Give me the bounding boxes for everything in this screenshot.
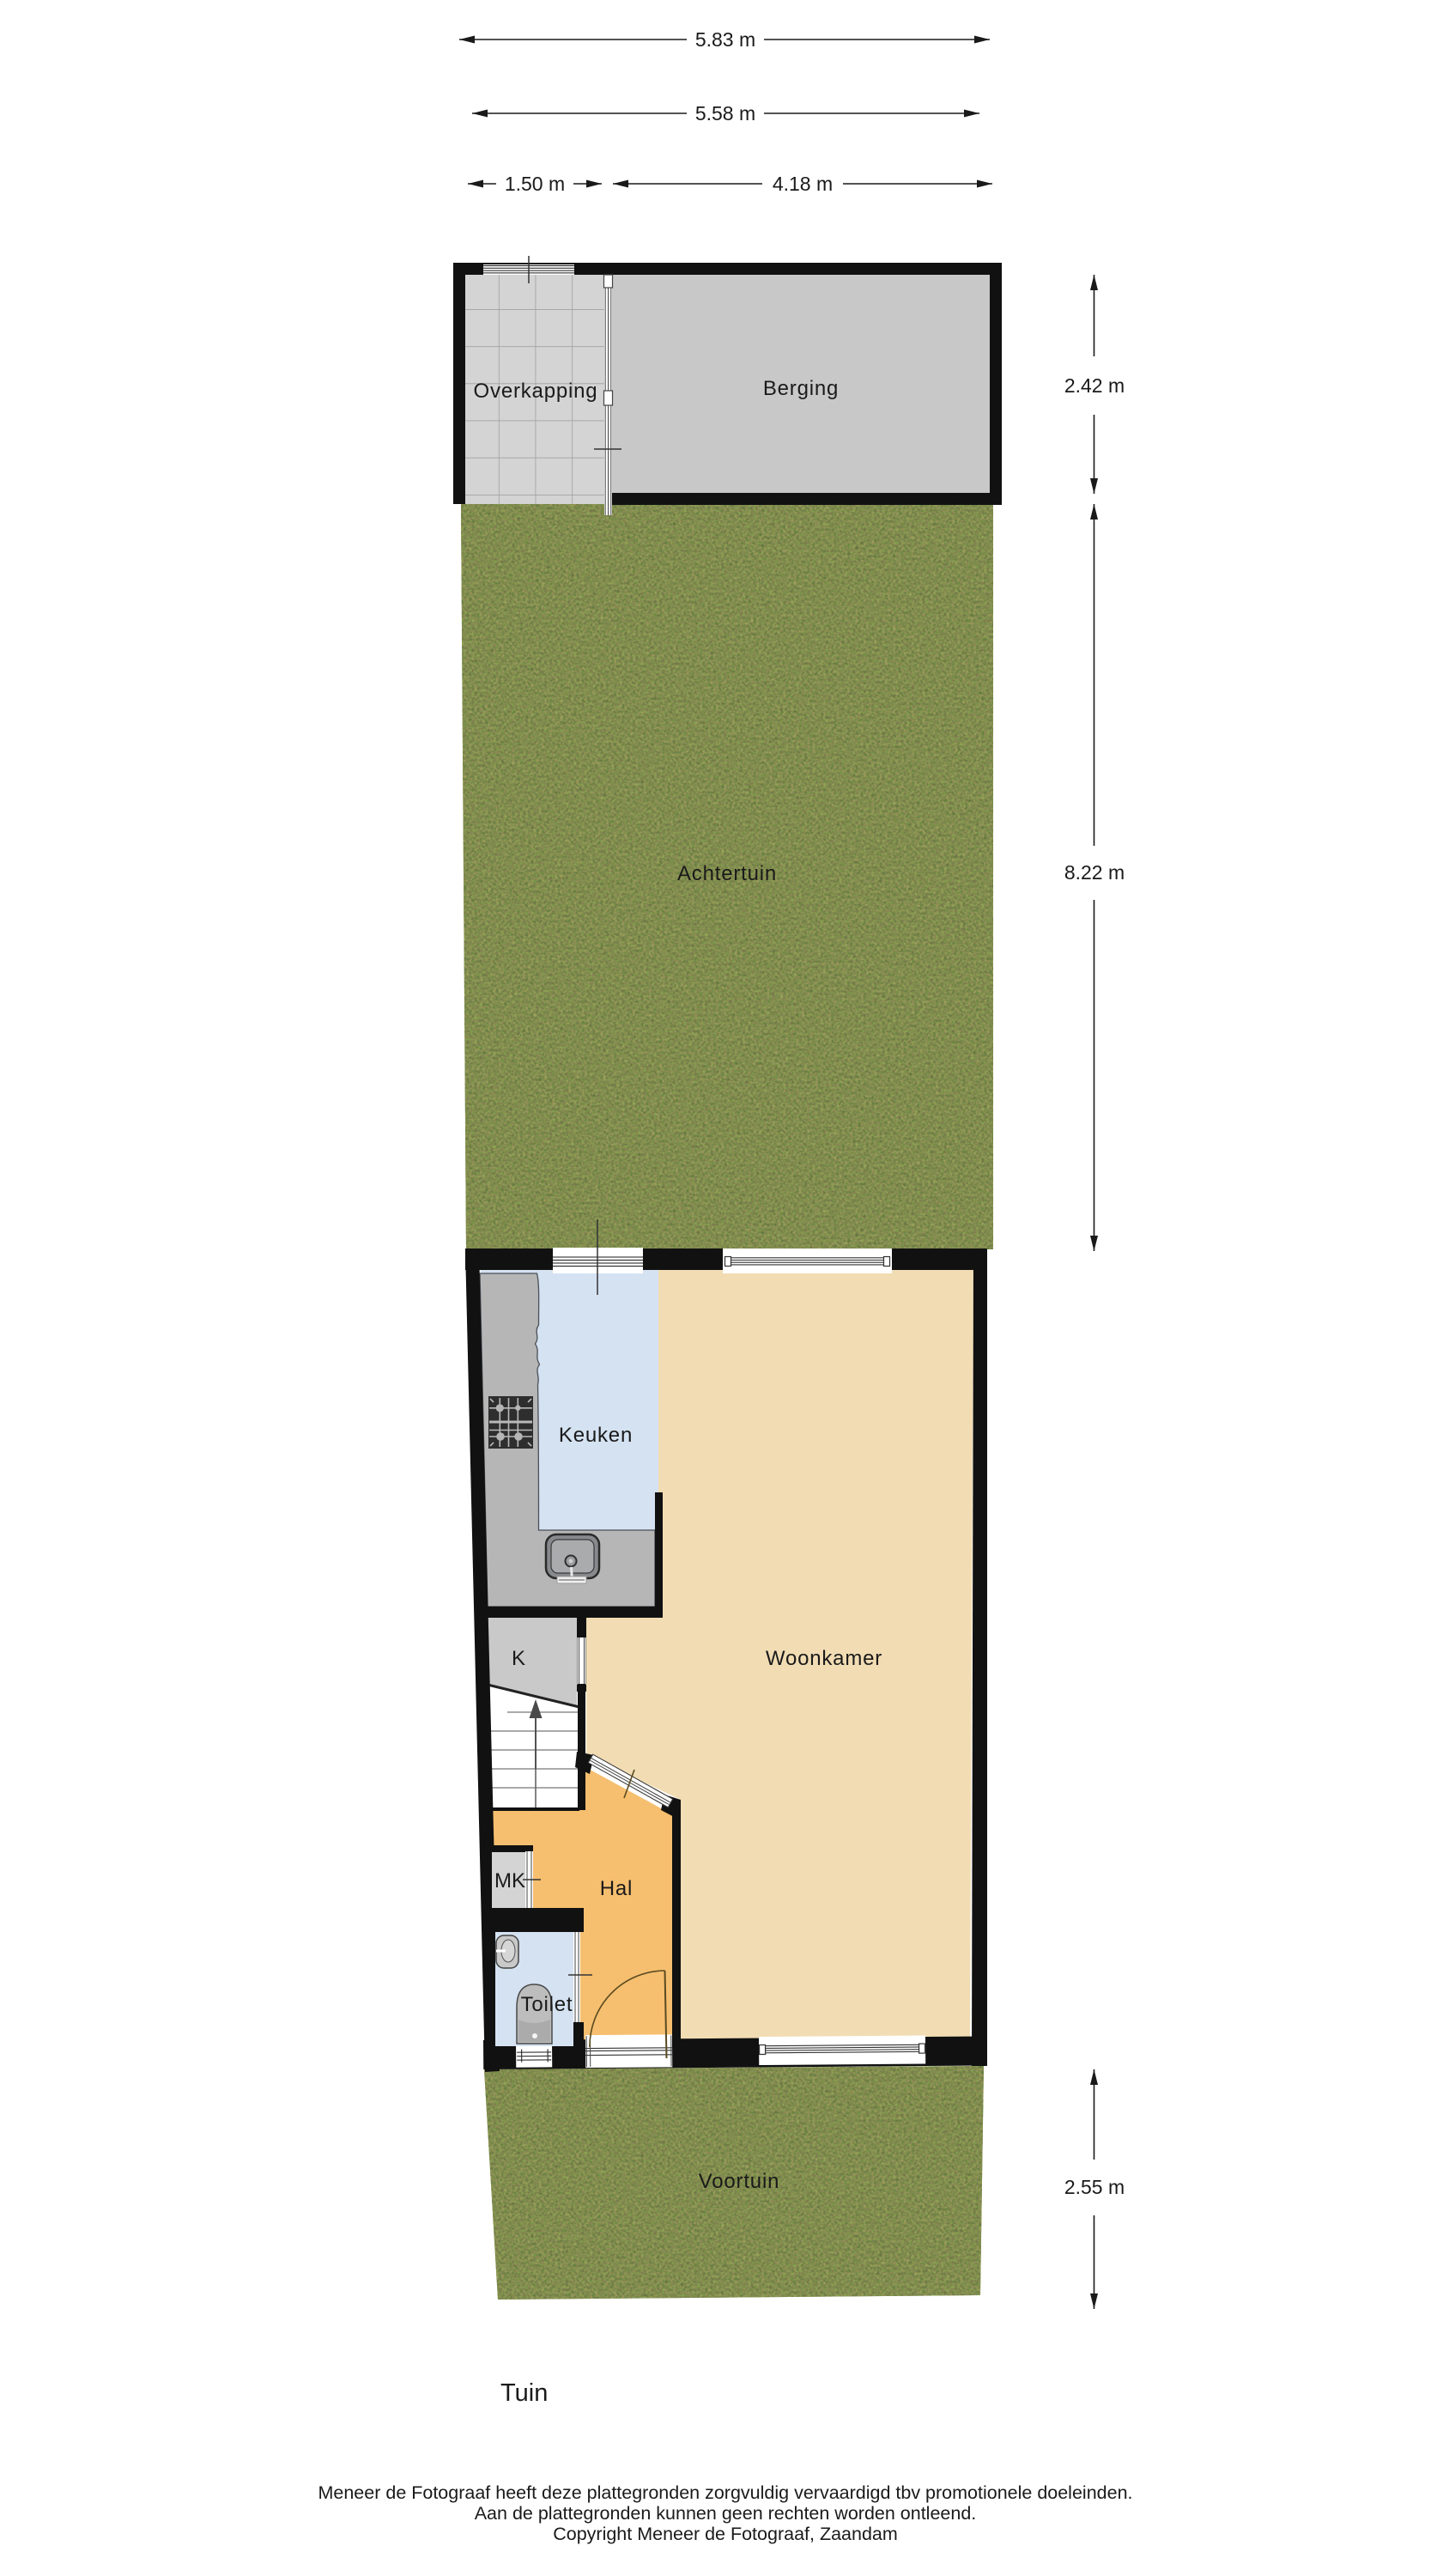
svg-text:Copyright Meneer de Fotograaf,: Copyright Meneer de Fotograaf, Zaandam (553, 2524, 898, 2544)
svg-text:2.42 m: 2.42 m (1064, 374, 1125, 397)
svg-text:2.55 m: 2.55 m (1064, 2176, 1125, 2198)
svg-text:Voortuin: Voortuin (699, 2170, 779, 2193)
svg-text:5.83 m: 5.83 m (695, 28, 755, 51)
svg-text:Hal: Hal (600, 1877, 633, 1900)
svg-text:Tuin: Tuin (500, 2379, 548, 2407)
svg-text:MK: MK (494, 1869, 525, 1893)
svg-text:Berging: Berging (763, 377, 839, 400)
svg-text:Keuken: Keuken (559, 1424, 633, 1447)
svg-text:4.18 m: 4.18 m (773, 173, 833, 195)
svg-text:8.22 m: 8.22 m (1064, 861, 1125, 884)
svg-text:Achtertuin: Achtertuin (677, 862, 777, 885)
svg-text:K: K (512, 1647, 525, 1670)
svg-text:5.58 m: 5.58 m (695, 102, 755, 125)
svg-text:Meneer de Fotograaf heeft deze: Meneer de Fotograaf heeft deze plattegro… (318, 2482, 1132, 2503)
svg-text:1.50 m: 1.50 m (505, 173, 565, 195)
svg-text:Woonkamer: Woonkamer (766, 1647, 882, 1670)
svg-text:Aan de plattegronden kunnen ge: Aan de plattegronden kunnen geen rechten… (475, 2503, 977, 2524)
svg-text:Toilet: Toilet (521, 1993, 573, 2016)
svg-text:Overkapping: Overkapping (474, 380, 598, 403)
